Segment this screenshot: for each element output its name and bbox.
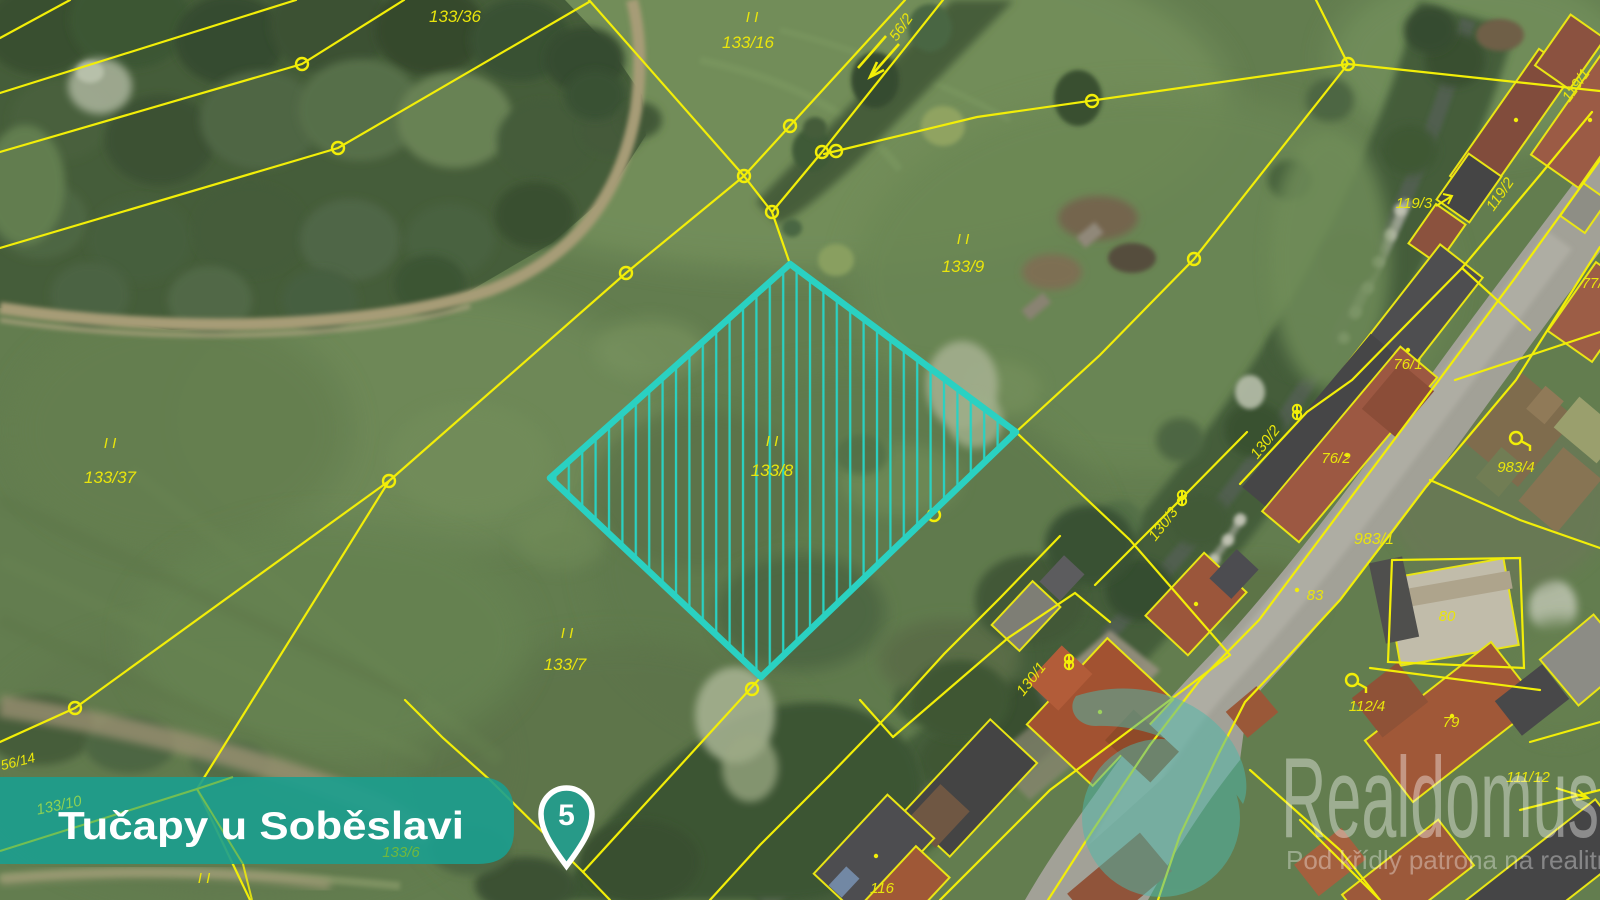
svg-text:80: 80 <box>1439 608 1456 625</box>
svg-text:119/3: 119/3 <box>1396 195 1433 212</box>
svg-text:I I: I I <box>561 625 574 642</box>
svg-text:983/4: 983/4 <box>1497 459 1535 476</box>
svg-text:133/8: 133/8 <box>751 461 794 480</box>
svg-text:Realdomus: Realdomus <box>1281 735 1599 862</box>
svg-text:133/7: 133/7 <box>544 655 587 674</box>
svg-text:I I: I I <box>104 435 117 452</box>
svg-text:Pod křídly patrona na realitní: Pod křídly patrona na realitním trhu <box>1286 845 1600 875</box>
svg-text:133/16: 133/16 <box>722 33 775 52</box>
svg-text:112/4: 112/4 <box>1349 698 1385 715</box>
svg-text:I I: I I <box>746 9 759 26</box>
svg-text:133/36: 133/36 <box>429 7 482 26</box>
svg-text:79: 79 <box>1443 714 1460 731</box>
svg-text:983/1: 983/1 <box>1354 531 1394 548</box>
svg-text:I I: I I <box>198 870 211 887</box>
svg-text:133/9: 133/9 <box>942 257 985 276</box>
svg-text:76/1: 76/1 <box>1393 356 1422 373</box>
svg-text:I I: I I <box>957 231 970 248</box>
svg-text:77/: 77/ <box>1582 275 1600 292</box>
svg-text:I I: I I <box>766 433 779 450</box>
svg-text:5: 5 <box>558 799 575 832</box>
svg-text:116: 116 <box>870 880 895 897</box>
svg-text:76/2: 76/2 <box>1321 450 1351 467</box>
svg-text:133/37: 133/37 <box>84 468 137 487</box>
svg-text:Tučapy u Soběslavi: Tučapy u Soběslavi <box>58 805 464 848</box>
svg-text:83: 83 <box>1307 587 1324 604</box>
